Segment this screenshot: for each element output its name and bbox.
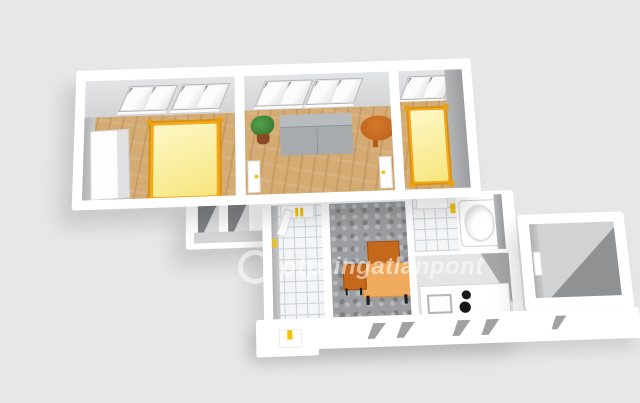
watermark-suffix: ingatlanpont — [334, 253, 484, 281]
living-door-right — [379, 156, 394, 189]
window-opening — [537, 315, 567, 329]
wc-door-handle — [295, 208, 298, 217]
otp-logo-dot — [263, 252, 272, 261]
window — [305, 78, 363, 105]
wc-door-handle — [300, 208, 303, 217]
sofa-seam — [316, 126, 318, 155]
room-bathroom — [412, 194, 506, 252]
kitchen-sink — [427, 294, 453, 314]
bedroom1-back-wall — [85, 77, 235, 118]
room-living — [244, 72, 395, 196]
plant-pot — [257, 134, 270, 145]
living-door-left — [247, 160, 260, 193]
double-bed-mattress — [153, 124, 217, 198]
single-bed — [406, 106, 452, 186]
watermark-brand: otp — [281, 253, 323, 282]
hallway-floor — [194, 230, 271, 243]
door-handle — [254, 175, 258, 179]
bathtub-bowl — [463, 204, 496, 242]
bed-post — [443, 104, 449, 110]
double-bed — [148, 119, 222, 201]
chair-leg — [345, 288, 347, 295]
towel-hook — [273, 239, 277, 248]
door-handle — [381, 170, 385, 174]
watermark: otp ingatlanpont — [238, 250, 484, 284]
stove-burner — [459, 301, 471, 313]
stove-burner — [461, 290, 471, 299]
room-entry — [529, 221, 622, 298]
bed-post — [217, 117, 223, 123]
south-door-handle — [287, 330, 292, 340]
single-bed-mattress — [410, 110, 448, 182]
room-bedroom-2 — [398, 69, 471, 190]
bed-post — [404, 105, 410, 111]
entry-wing — [517, 211, 634, 310]
bed-post — [218, 196, 224, 201]
window — [255, 79, 314, 106]
door-opening — [228, 205, 249, 232]
bed-post — [448, 180, 454, 186]
bathroom-handle — [450, 203, 456, 213]
floorplan-3d-scene — [0, 3, 640, 403]
otp-ring-logo-icon — [238, 250, 272, 284]
upper-wing — [72, 58, 482, 210]
living-back-wall — [244, 72, 390, 111]
window — [118, 85, 178, 112]
floorplan-stage: otp ingatlanpont — [0, 0, 640, 403]
room-bedroom-1 — [82, 77, 236, 201]
bed-post — [147, 119, 153, 125]
desk-leg — [366, 296, 370, 305]
sofa — [280, 113, 354, 156]
wardrobe — [90, 129, 130, 201]
chair-leg — [360, 288, 362, 295]
round-table — [360, 115, 395, 141]
bed-post — [409, 182, 415, 188]
door-opening — [198, 206, 219, 233]
window — [171, 83, 230, 110]
desk-leg — [404, 294, 408, 303]
bed-post — [146, 198, 152, 200]
